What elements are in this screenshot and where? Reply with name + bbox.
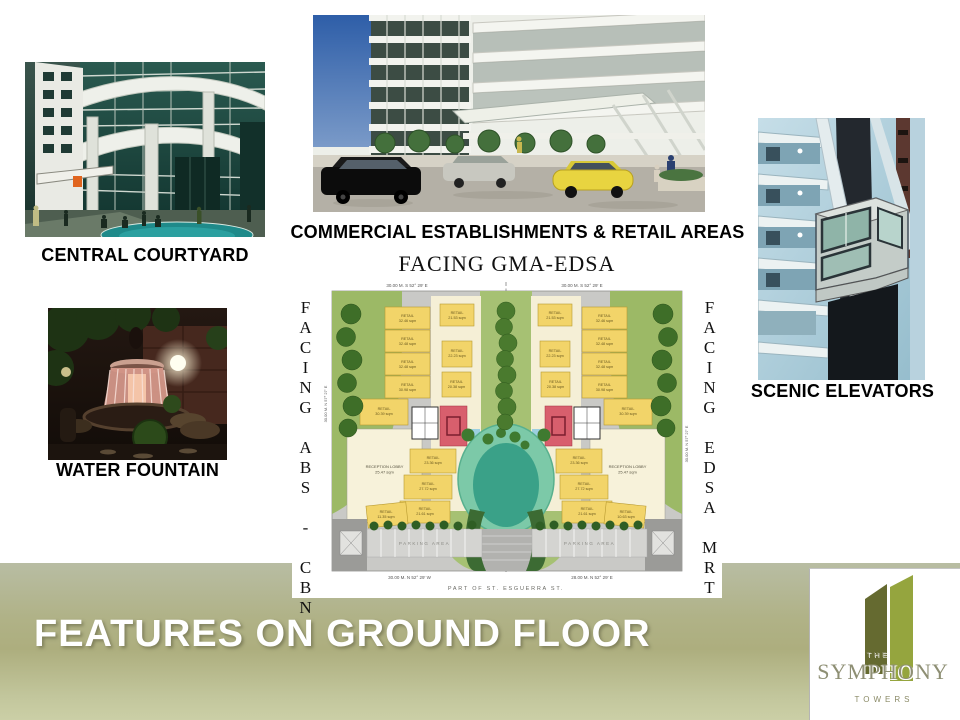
svg-text:RETAIL: RETAIL: [401, 383, 414, 387]
svg-text:30.00 M. N 52° 29' W: 30.00 M. N 52° 29' W: [388, 575, 431, 580]
svg-text:30.39 sqm: 30.39 sqm: [375, 412, 393, 416]
svg-text:RETAIL: RETAIL: [549, 311, 562, 315]
commercial-label: COMMERCIAL ESTABLISHMENTS & RETAIL AREAS: [280, 222, 755, 243]
svg-text:11.35 sqm: 11.35 sqm: [377, 515, 394, 519]
slide: CENTRAL COURTYARD: [0, 0, 960, 720]
svg-text:RETAIL: RETAIL: [549, 380, 562, 384]
street-label: PART OF ST. ESGUERRA ST.: [448, 586, 564, 592]
central-courtyard-label: CENTRAL COURTYARD: [20, 245, 270, 266]
svg-text:RETAIL: RETAIL: [598, 383, 611, 387]
svg-text:30.39 sqm: 30.39 sqm: [619, 412, 637, 416]
svg-text:RETAIL: RETAIL: [422, 482, 435, 486]
svg-text:RETAIL: RETAIL: [620, 510, 633, 514]
symphony-towers-logo: THE SYMPHONY TOWERS: [809, 568, 960, 720]
floor-plan-panel: FACING GMA-EDSA FACING ABS - CBN FACING …: [292, 250, 722, 598]
svg-text:30.00 M. S 52° 29' E: 30.00 M. S 52° 29' E: [561, 283, 602, 288]
svg-text:32.46 sqm: 32.46 sqm: [399, 319, 417, 323]
svg-text:30.00 M. N 57° 27' E: 30.00 M. N 57° 27' E: [323, 385, 328, 422]
urn: [60, 408, 76, 442]
svg-text:RECEPTION LOBBY: RECEPTION LOBBY: [366, 464, 404, 469]
planter: [658, 169, 705, 191]
svg-text:32.46 sqm: 32.46 sqm: [596, 319, 614, 323]
central-courtyard-image: [25, 62, 265, 237]
svg-text:32.48 sqm: 32.48 sqm: [399, 342, 417, 346]
lamp: [170, 355, 186, 371]
water-fountain-label: WATER FOUNTAIN: [40, 460, 235, 481]
scenic-elevators-label: SCENIC ELEVATORS: [740, 381, 945, 402]
commercial-image: [313, 15, 705, 212]
svg-text:PARKING AREA: PARKING AREA: [564, 541, 615, 546]
logo-symphony: SYMPHONY: [817, 659, 948, 684]
svg-text:30.00 M. N 57° 27' E: 30.00 M. N 57° 27' E: [684, 425, 689, 462]
svg-text:RETAIL: RETAIL: [378, 407, 391, 411]
logo-the: THE: [867, 652, 890, 659]
svg-text:20.38 sqm: 20.38 sqm: [547, 385, 565, 389]
scenic-elevators-image: [758, 118, 925, 380]
red-core-right: [545, 406, 572, 446]
svg-text:30.98 sqm: 30.98 sqm: [399, 388, 417, 392]
svg-text:RETAIL: RETAIL: [573, 456, 586, 460]
svg-text:RETAIL: RETAIL: [578, 482, 591, 486]
svg-text:23.36 sqm: 23.36 sqm: [570, 461, 588, 465]
svg-text:RETAIL: RETAIL: [401, 360, 414, 364]
svg-text:RECEPTION LOBBY: RECEPTION LOBBY: [609, 464, 647, 469]
svg-text:25.47 sqm: 25.47 sqm: [618, 470, 637, 475]
svg-text:32.48 sqm: 32.48 sqm: [596, 365, 614, 369]
svg-text:20.38 sqm: 20.38 sqm: [448, 385, 466, 389]
sky: [313, 15, 371, 147]
svg-text:RETAIL: RETAIL: [622, 407, 635, 411]
small-light: [61, 367, 71, 377]
svg-text:RETAIL: RETAIL: [451, 311, 464, 315]
logo-graphic: THE SYMPHONY TOWERS: [810, 569, 960, 720]
svg-text:21.61 sqm: 21.61 sqm: [578, 512, 596, 516]
svg-text:27.72 sqm: 27.72 sqm: [419, 487, 437, 491]
svg-text:RETAIL: RETAIL: [401, 314, 414, 318]
ground-floor-plan: 30.00 M. S 52° 29' E 30.00 M. S 52° 29' …: [292, 279, 722, 597]
orange-banner: [73, 176, 82, 187]
svg-text:RETAIL: RETAIL: [598, 360, 611, 364]
svg-text:RETAIL: RETAIL: [598, 314, 611, 318]
svg-text:30.98 sqm: 30.98 sqm: [596, 388, 614, 392]
svg-text:21.53 sqm: 21.53 sqm: [546, 316, 564, 320]
fountain-rendering: [48, 308, 227, 460]
svg-text:25.47 sqm: 25.47 sqm: [375, 470, 394, 475]
plant: [163, 395, 181, 413]
floor-plan-title: FACING GMA-EDSA: [292, 251, 722, 277]
slide-title: FEATURES ON GROUND FLOOR: [34, 613, 651, 656]
central-driveway: [477, 529, 535, 571]
svg-text:21.53 sqm: 21.53 sqm: [448, 316, 466, 320]
logo-towers: TOWERS: [855, 695, 914, 704]
water-fountain-image: [48, 308, 227, 460]
svg-text:RETAIL: RETAIL: [450, 380, 463, 384]
svg-text:PARKING AREA: PARKING AREA: [399, 541, 450, 546]
red-core-left: [440, 406, 467, 446]
svg-text:23.36 sqm: 23.36 sqm: [424, 461, 442, 465]
svg-text:21.61 sqm: 21.61 sqm: [416, 512, 434, 516]
svg-text:27.72 sqm: 27.72 sqm: [575, 487, 593, 491]
svg-text:RETAIL: RETAIL: [451, 349, 464, 353]
svg-text:RETAIL: RETAIL: [380, 510, 393, 514]
svg-text:22.23 sqm: 22.23 sqm: [546, 354, 564, 358]
svg-text:10.63 sqm: 10.63 sqm: [617, 515, 635, 519]
commercial-rendering: [313, 15, 705, 212]
central-courtyard-rendering: [25, 62, 265, 237]
svg-text:22.23 sqm: 22.23 sqm: [448, 354, 466, 358]
svg-text:RETAIL: RETAIL: [581, 507, 594, 511]
svg-text:32.48 sqm: 32.48 sqm: [596, 342, 614, 346]
elevator-rendering: [758, 118, 925, 380]
svg-text:RETAIL: RETAIL: [549, 349, 562, 353]
svg-text:30.00 M. S 52° 29' E: 30.00 M. S 52° 29' E: [386, 283, 427, 288]
svg-text:32.48 sqm: 32.48 sqm: [399, 365, 417, 369]
svg-text:RETAIL: RETAIL: [427, 456, 440, 460]
svg-text:RETAIL: RETAIL: [419, 507, 432, 511]
svg-text:RETAIL: RETAIL: [598, 337, 611, 341]
right-column: [910, 118, 925, 380]
svg-text:RETAIL: RETAIL: [401, 337, 414, 341]
svg-text:28.00 M. N 52° 29' E: 28.00 M. N 52° 29' E: [571, 575, 612, 580]
